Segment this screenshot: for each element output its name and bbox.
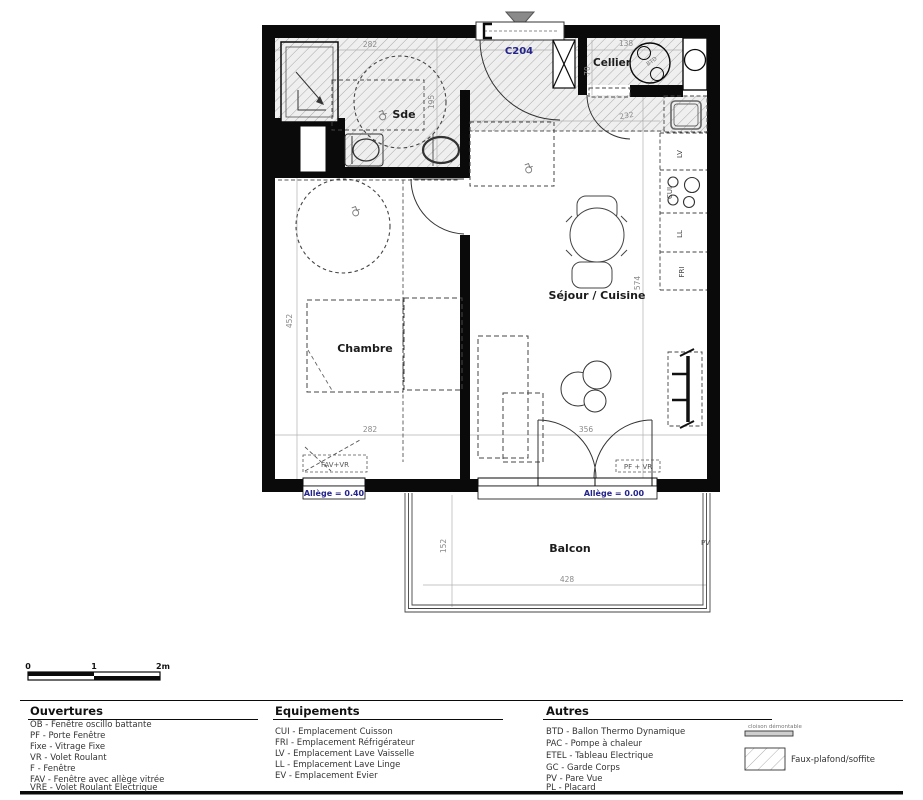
legend-item: CUI - Emplacement Cuisson — [275, 727, 393, 737]
scale-bar: 0 1 2m — [25, 662, 170, 680]
dining-table — [566, 196, 627, 288]
legend-title-autres: Autres — [546, 704, 589, 718]
legend-item: PAC - Pompe à chaleur — [546, 739, 642, 749]
etel-box — [553, 40, 575, 88]
dim-balcon-height: 152 — [439, 539, 448, 554]
legend-symbols: cloison démontable Faux-plafond/soffite — [745, 723, 875, 770]
dim-sde-width: 282 — [363, 40, 378, 49]
legend-equipements: Equipements CUI - Emplacement Cuisson FR… — [273, 704, 503, 781]
chambre-door-swing — [411, 179, 464, 234]
furniture-placement — [503, 393, 543, 462]
room-label-sde: Sde — [392, 108, 415, 121]
legend-item: VRE - Volet Roulant Electrique — [30, 783, 157, 793]
legend-item: GC - Garde Corps — [546, 763, 620, 773]
dim-cellier-width: 138 — [619, 39, 634, 48]
lv-label: LV — [676, 150, 684, 158]
sill-sejour: Allège = 0.00 — [584, 488, 645, 498]
legend-item: Fixe - Vitrage Fixe — [30, 742, 105, 752]
legend-item: PL - Placard — [546, 783, 596, 793]
ll-label: LL — [676, 230, 684, 238]
dim-door-width: 356 — [579, 425, 594, 434]
wheelchair-icon — [351, 206, 362, 217]
legend-title-equipements: Equipements — [275, 704, 360, 718]
sill-chambre: Allège = 0.40 — [304, 488, 365, 498]
cloison-demontable-symbol — [745, 731, 793, 736]
duct-shaft — [683, 38, 707, 90]
room-chambre: Chambre FAV+VR Allège = 0.40 — [278, 179, 464, 499]
pv-label: PV — [701, 539, 710, 547]
pf-vr-label: PF + VR — [624, 463, 652, 471]
balcony: Balcon PV — [405, 493, 710, 612]
cui-label: CUI — [666, 187, 674, 199]
legend-item: ETEL - Tableau Electrique — [546, 751, 653, 761]
room-label-balcon: Balcon — [549, 542, 591, 555]
dim-cellier-height: 70 — [583, 66, 592, 76]
radiator — [668, 349, 702, 428]
turning-circle — [296, 179, 390, 273]
faux-plafond-symbol — [745, 748, 785, 770]
legend-item: EV - Emplacement Evier — [275, 771, 378, 781]
plant — [561, 361, 611, 412]
legend-item: VR - Volet Roulant — [30, 753, 107, 763]
scale-0: 0 — [25, 662, 31, 671]
legend-item: F - Fenêtre — [30, 763, 76, 774]
legend-item: PF - Porte Fenêtre — [30, 730, 105, 741]
room-label-sejour: Séjour / Cuisine — [549, 289, 646, 302]
legend-autres: Autres BTD - Ballon Thermo Dynamique PAC… — [543, 704, 772, 793]
legend-title-ouvertures: Ouvertures — [30, 704, 103, 718]
faux-plafond-label: Faux-plafond/soffite — [791, 755, 875, 765]
dim-chambre-width: 282 — [363, 425, 378, 434]
dim-chambre-height: 452 — [285, 314, 294, 329]
legend-item: OB - Fenêtre oscillo battante — [30, 719, 152, 730]
dim-sde-height: 195 — [427, 95, 436, 110]
cloison-demontable-label: cloison démontable — [748, 723, 803, 730]
wheelchair-icon — [524, 163, 535, 174]
turning-square — [470, 122, 554, 186]
legend-item: LV - Emplacement Lave Vaisselle — [275, 749, 414, 759]
room-sejour: Séjour / Cuisine — [478, 196, 702, 499]
fav-vr-label: FAV+VR — [321, 461, 349, 469]
legend: Ouvertures OB - Fenêtre oscillo battante… — [20, 701, 903, 795]
room-label-cellier: Cellier — [593, 57, 632, 69]
dim-kitchen-height: 574 — [633, 276, 642, 291]
unit-label: C204 — [505, 46, 533, 57]
fri-label: FRI — [678, 267, 686, 278]
floor-plan-drawing: C204 Sde — [0, 0, 923, 800]
legend-item: LL - Emplacement Lave Linge — [275, 760, 400, 770]
floor-plan-page: C204 Sde — [0, 0, 923, 800]
scale-2m: 2m — [156, 662, 170, 671]
legend-ouvertures: Ouvertures OB - Fenêtre oscillo battante… — [28, 704, 258, 793]
legend-item: FRI - Emplacement Réfrigérateur — [275, 737, 415, 748]
dim-balcon-width: 428 — [560, 575, 575, 584]
furniture-placement — [404, 298, 462, 390]
sejour-window: PF + VR Allège = 0.00 — [478, 460, 660, 499]
wall-niche — [300, 126, 326, 172]
room-label-chambre: Chambre — [337, 342, 393, 355]
legend-item: BTD - Ballon Thermo Dynamique — [546, 727, 685, 737]
chambre-window: FAV+VR Allège = 0.40 — [303, 440, 367, 499]
scale-1: 1 — [91, 662, 97, 671]
